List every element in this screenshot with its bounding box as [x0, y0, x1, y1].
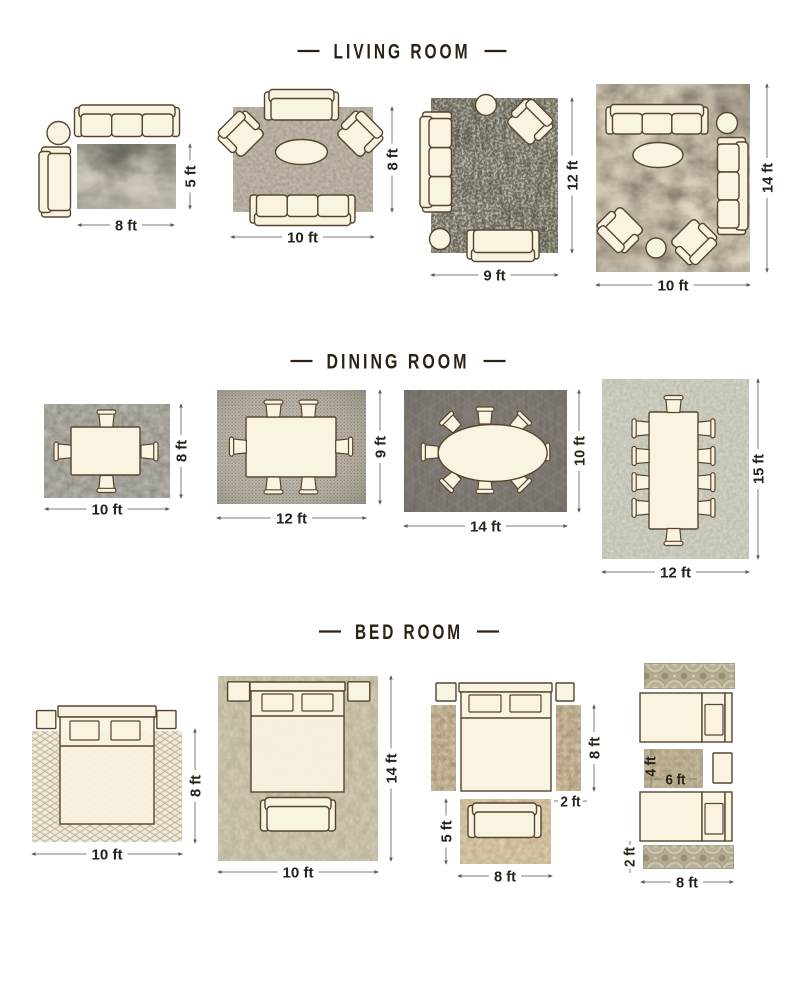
svg-text:12 ft: 12 ft — [565, 160, 582, 190]
svg-text:DINING ROOM: DINING ROOM — [327, 351, 470, 374]
svg-text:2 ft: 2 ft — [622, 847, 639, 867]
svg-text:6 ft: 6 ft — [666, 772, 686, 789]
svg-text:4 ft: 4 ft — [643, 756, 660, 776]
svg-text:5 ft: 5 ft — [439, 820, 456, 842]
svg-text:10 ft: 10 ft — [283, 865, 314, 882]
svg-text:8 ft: 8 ft — [188, 775, 205, 797]
svg-text:BED ROOM: BED ROOM — [355, 621, 463, 644]
svg-text:8 ft: 8 ft — [174, 440, 191, 462]
svg-text:10 ft: 10 ft — [92, 502, 123, 519]
svg-text:12 ft: 12 ft — [276, 511, 307, 528]
svg-text:12 ft: 12 ft — [660, 565, 691, 582]
svg-text:8 ft: 8 ft — [385, 148, 402, 170]
svg-text:8 ft: 8 ft — [676, 875, 698, 892]
svg-text:9 ft: 9 ft — [484, 268, 506, 285]
svg-text:10 ft: 10 ft — [572, 436, 589, 466]
svg-text:10 ft: 10 ft — [658, 278, 689, 295]
svg-text:14 ft: 14 ft — [470, 519, 501, 536]
svg-text:8 ft: 8 ft — [587, 737, 604, 759]
svg-text:8 ft: 8 ft — [494, 869, 516, 886]
svg-text:2 ft: 2 ft — [561, 794, 581, 811]
svg-text:8 ft: 8 ft — [115, 218, 137, 235]
svg-text:9 ft: 9 ft — [373, 436, 390, 458]
svg-text:15 ft: 15 ft — [751, 454, 768, 484]
svg-text:5 ft: 5 ft — [183, 165, 200, 187]
svg-text:14 ft: 14 ft — [384, 753, 401, 783]
svg-text:14 ft: 14 ft — [760, 163, 777, 193]
svg-text:10 ft: 10 ft — [92, 847, 123, 864]
svg-text:LIVING ROOM: LIVING ROOM — [334, 41, 471, 64]
svg-text:10 ft: 10 ft — [287, 230, 318, 247]
